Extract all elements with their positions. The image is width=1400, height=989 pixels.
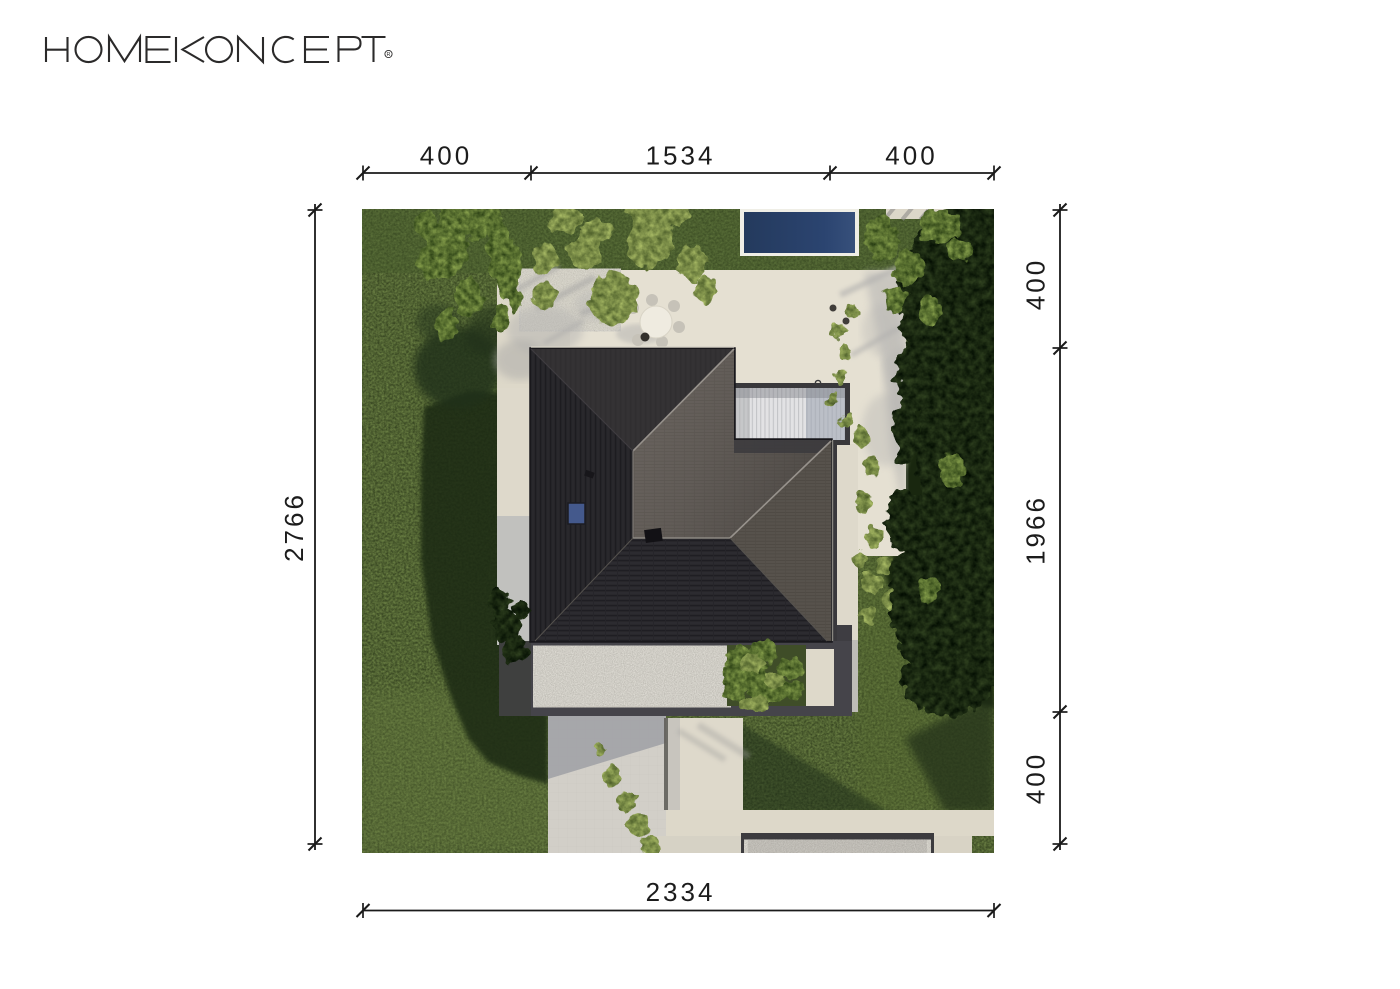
svg-text:400: 400 [1021, 258, 1051, 310]
svg-text:400: 400 [420, 141, 472, 171]
svg-text:R: R [387, 52, 391, 58]
svg-text:1534: 1534 [646, 141, 716, 171]
svg-text:2766: 2766 [279, 492, 309, 562]
svg-text:1966: 1966 [1021, 495, 1051, 565]
svg-text:2334: 2334 [646, 877, 716, 907]
svg-text:400: 400 [885, 141, 937, 171]
svg-text:400: 400 [1021, 752, 1051, 804]
